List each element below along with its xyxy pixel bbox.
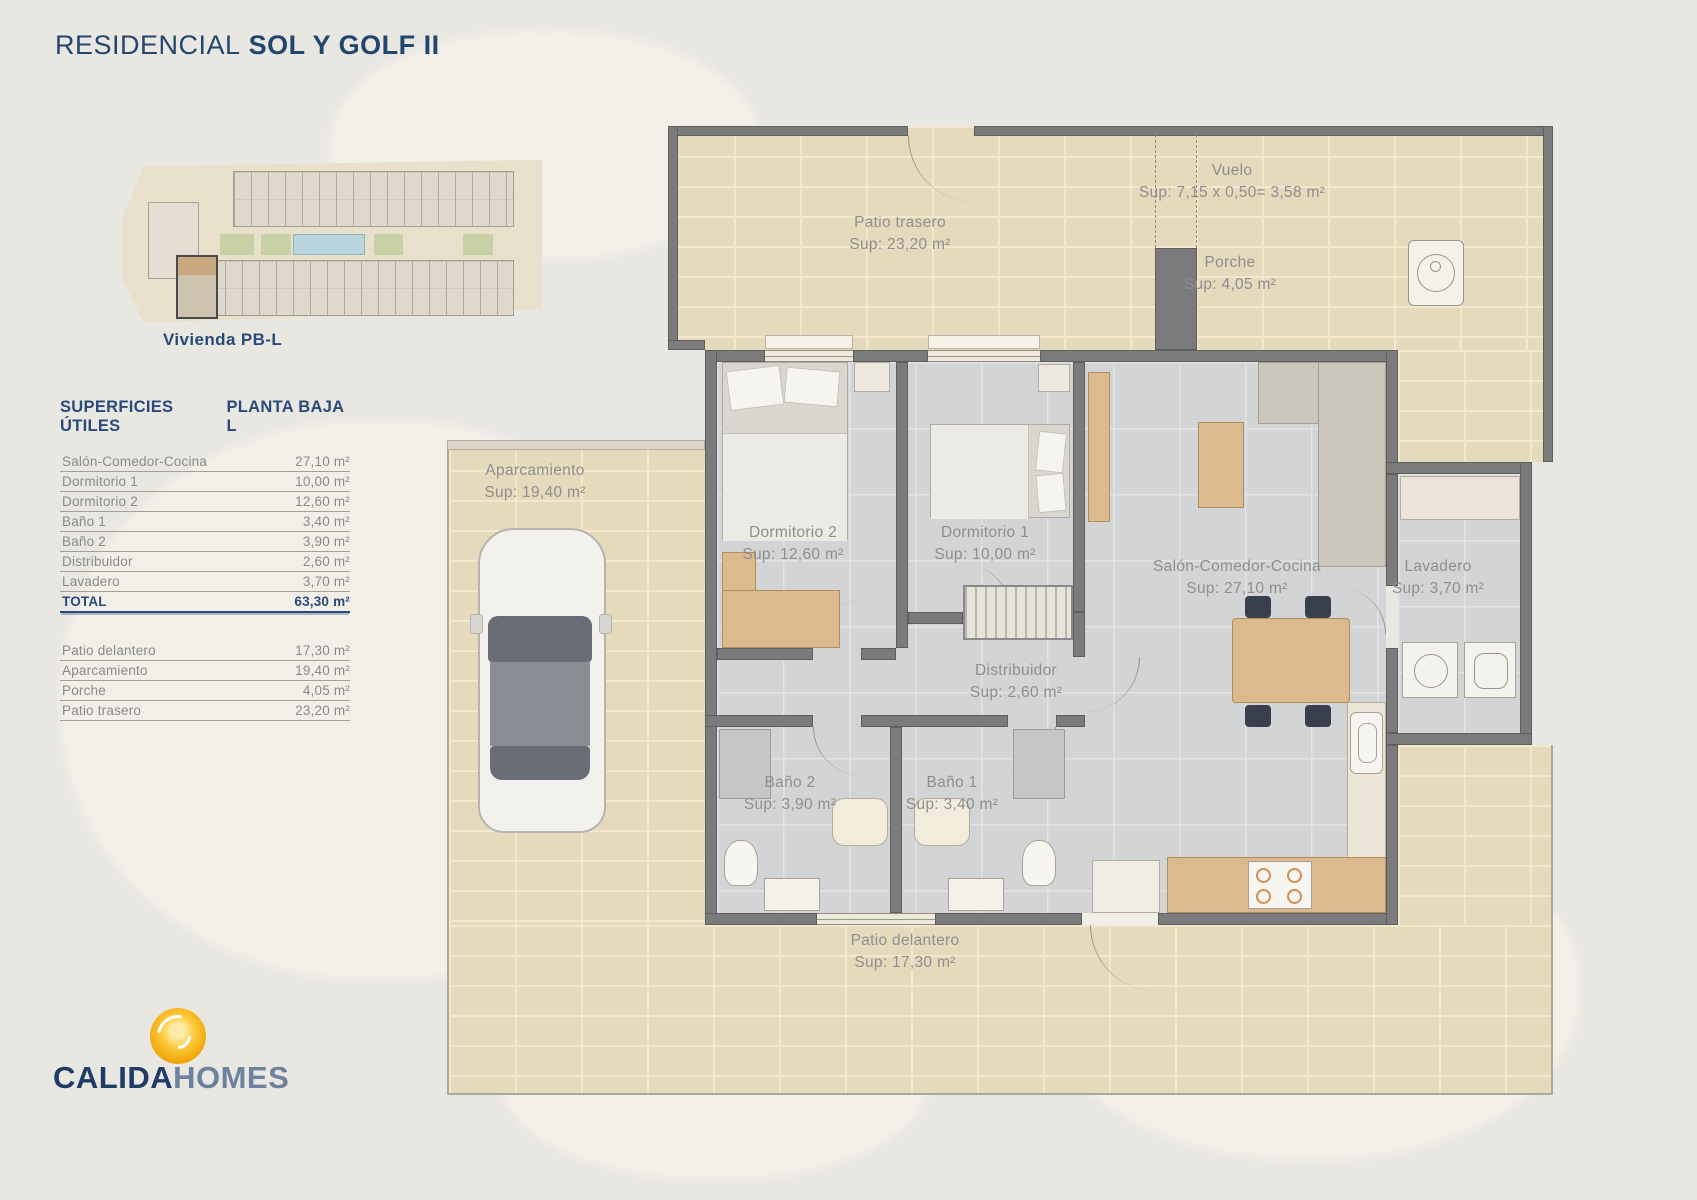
table-row: Baño 23,90 m² — [60, 532, 350, 552]
room-area: Sup: 3,90 m² — [744, 794, 836, 816]
room-name: Aparcamiento — [484, 460, 585, 482]
wall — [1386, 648, 1398, 733]
table-row: Patio trasero23,20 m² — [60, 701, 350, 721]
aparcamiento-fence — [447, 440, 705, 450]
wall — [1386, 350, 1398, 474]
window — [765, 350, 853, 362]
wall — [705, 350, 717, 925]
wall — [1543, 126, 1553, 462]
site-plan-pool — [293, 234, 365, 256]
page-title-bold: SOL Y GOLF II — [249, 30, 440, 60]
sink-basin — [1474, 653, 1508, 689]
table-row: Patio delantero17,30 m² — [60, 641, 350, 661]
patio-side-area — [1398, 745, 1553, 925]
room-area: Sup: 2,60 m² — [970, 682, 1062, 704]
areas-table-title: SUPERFICIES ÚTILES — [60, 398, 227, 436]
wall — [1073, 362, 1085, 612]
nightstand — [1038, 364, 1070, 392]
room-area: Sup: 12,60 m² — [742, 544, 843, 566]
dining-chair — [1245, 705, 1271, 727]
closet — [963, 585, 1073, 640]
row-label: Porche — [62, 683, 106, 698]
room-name: Lavadero — [1392, 556, 1484, 578]
room-name: Dormitorio 1 — [934, 522, 1035, 544]
porche-side-area — [1398, 350, 1543, 462]
washing-machine — [1402, 642, 1458, 698]
table-row: Baño 13,40 m² — [60, 512, 350, 532]
table-row: Aparcamiento19,40 m² — [60, 661, 350, 681]
window — [817, 913, 935, 925]
row-label: Dormitorio 2 — [62, 494, 138, 509]
row-value: 27,10 m² — [295, 454, 350, 469]
window-sill — [928, 335, 1040, 349]
washer-drum — [1414, 654, 1448, 688]
kitchen-sink — [1350, 712, 1383, 774]
label-patio-delantero: Patio delantero Sup: 17,30 m² — [851, 930, 960, 975]
pillow — [1035, 473, 1066, 513]
site-plan-garden — [374, 234, 404, 256]
car-mirror — [599, 614, 612, 634]
logo-brand-primary: CALIDA — [53, 1060, 173, 1095]
wall — [890, 727, 902, 913]
label-dormitorio-2: Dormitorio 2 Sup: 12,60 m² — [742, 522, 843, 567]
wall — [1056, 715, 1085, 727]
laundry-sink — [1464, 642, 1516, 698]
table-row: Dormitorio 212,60 m² — [60, 492, 350, 512]
wall — [705, 715, 813, 727]
car-windshield — [488, 616, 592, 662]
row-value: 17,30 m² — [295, 643, 350, 658]
burner — [1256, 889, 1271, 904]
table-row: Distribuidor2,60 m² — [60, 552, 350, 572]
label-aparcamiento: Aparcamiento Sup: 19,40 m² — [484, 460, 585, 505]
site-plan-caption: Vivienda PB-L — [163, 330, 282, 350]
row-label: Patio delantero — [62, 643, 156, 658]
table-row: Dormitorio 110,00 m² — [60, 472, 350, 492]
car-mirror — [470, 614, 483, 634]
window-sill — [765, 335, 853, 349]
wall — [974, 126, 1553, 136]
desk — [722, 590, 840, 648]
sofa-chaise — [1318, 362, 1386, 567]
site-plan-garden — [463, 234, 493, 256]
room-name: Patio trasero — [849, 212, 950, 234]
label-bano-1: Baño 1 Sup: 3,40 m² — [906, 772, 998, 817]
label-bano-2: Baño 2 Sup: 3,90 m² — [744, 772, 836, 817]
wall — [908, 612, 963, 624]
pillow — [726, 365, 784, 411]
sink-basin — [1358, 723, 1377, 763]
row-value: 3,40 m² — [303, 514, 350, 529]
row-value: 19,40 m² — [295, 663, 350, 678]
room-area: Sup: 3,40 m² — [906, 794, 998, 816]
table-row: Porche4,05 m² — [60, 681, 350, 701]
areas-table: SUPERFICIES ÚTILES PLANTA BAJA L Salón-C… — [60, 398, 350, 721]
dining-chair — [1305, 705, 1331, 727]
row-value: 3,90 m² — [303, 534, 350, 549]
room-name: Patio delantero — [851, 930, 960, 952]
row-label: Aparcamiento — [62, 663, 148, 678]
site-plan-garden — [261, 234, 291, 256]
burner — [1287, 868, 1302, 883]
wall — [935, 913, 1082, 925]
tv-cabinet — [1088, 372, 1110, 522]
row-label: Patio trasero — [62, 703, 141, 718]
areas-table-subtitle: PLANTA BAJA L — [227, 398, 351, 436]
car — [478, 528, 606, 833]
fridge — [1092, 860, 1160, 913]
room-name: Baño 2 — [744, 772, 836, 794]
laundry-counter — [1400, 476, 1520, 520]
label-dormitorio-1: Dormitorio 1 Sup: 10,00 m² — [934, 522, 1035, 567]
row-label: Salón-Comedor-Cocina — [62, 454, 207, 469]
shower — [1013, 729, 1065, 799]
dining-table — [1232, 618, 1350, 703]
pillow — [784, 367, 841, 408]
wall — [668, 126, 908, 136]
pillow — [1035, 431, 1067, 474]
label-patio-trasero: Patio trasero Sup: 23,20 m² — [849, 212, 950, 257]
wall — [1520, 462, 1532, 745]
label-lavadero: Lavadero Sup: 3,70 m² — [1392, 556, 1484, 601]
wall — [1040, 350, 1398, 362]
label-porche: Porche Sup: 4,05 m² — [1184, 252, 1276, 297]
room-area: Sup: 23,20 m² — [849, 234, 950, 256]
wall — [1158, 913, 1398, 925]
table-row-total: TOTAL63,30 m² — [60, 592, 350, 613]
wall — [861, 648, 896, 660]
logo-icon — [150, 1008, 206, 1064]
label-distribuidor: Distribuidor Sup: 2,60 m² — [970, 660, 1062, 705]
wall — [1386, 462, 1532, 474]
site-plan-highlighted-unit — [176, 255, 219, 319]
row-value: 63,30 m² — [294, 594, 350, 609]
wall — [853, 350, 928, 362]
porch-table — [1408, 240, 1464, 306]
room-name: Baño 1 — [906, 772, 998, 794]
row-value: 4,05 m² — [303, 683, 350, 698]
bed — [930, 424, 1070, 518]
bed — [722, 362, 848, 540]
wall — [1386, 733, 1532, 745]
row-value: 2,60 m² — [303, 554, 350, 569]
coffee-table — [1198, 422, 1244, 508]
burner — [1287, 889, 1302, 904]
toilet — [1022, 840, 1056, 886]
room-area: Sup: 27,10 m² — [1153, 578, 1321, 600]
bathroom-vanity — [948, 878, 1004, 911]
label-vuelo: Vuelo Sup: 7,15 x 0,50= 3,58 m² — [1139, 160, 1325, 205]
table-row: Lavadero3,70 m² — [60, 572, 350, 592]
logo-brand-secondary: HOMES — [173, 1060, 289, 1095]
room-name: Vuelo — [1139, 160, 1325, 182]
row-value: 10,00 m² — [295, 474, 350, 489]
bathtub — [832, 798, 888, 846]
wall — [1386, 745, 1398, 925]
room-area: Sup: 10,00 m² — [934, 544, 1035, 566]
room-name: Distribuidor — [970, 660, 1062, 682]
room-area: Sup: 7,15 x 0,50= 3,58 m² — [1139, 182, 1325, 204]
room-area: Sup: 3,70 m² — [1392, 578, 1484, 600]
wall — [1073, 612, 1085, 657]
room-name: Salón-Comedor-Cocina — [1153, 556, 1321, 578]
site-plan-building-north — [233, 171, 514, 226]
row-label: TOTAL — [62, 594, 107, 609]
wall — [717, 648, 813, 660]
nightstand — [854, 362, 890, 392]
row-value: 12,60 m² — [295, 494, 350, 509]
room-area: Sup: 19,40 m² — [484, 482, 585, 504]
wall — [668, 340, 705, 350]
site-plan-building-south — [207, 260, 514, 315]
site-plan-garden — [220, 234, 254, 256]
room-area: Sup: 17,30 m² — [851, 952, 960, 974]
porch-table-top — [1417, 254, 1455, 292]
wall — [668, 126, 678, 350]
patio-delantero-area — [447, 925, 1553, 1095]
logo-wordmark: CALIDAHOMES — [53, 1060, 289, 1096]
patio-trasero-area — [668, 126, 1553, 350]
site-plan-highlighted-unit-patio — [178, 257, 217, 275]
car-roof — [490, 662, 590, 746]
porch-table-detail — [1430, 261, 1441, 272]
page-title-light: RESIDENCIAL — [55, 30, 241, 60]
wall — [705, 913, 817, 925]
row-label: Baño 2 — [62, 534, 106, 549]
row-label: Baño 1 — [62, 514, 106, 529]
room-area: Sup: 4,05 m² — [1184, 274, 1276, 296]
label-salon-comedor-cocina: Salón-Comedor-Cocina Sup: 27,10 m² — [1153, 556, 1321, 601]
row-label: Lavadero — [62, 574, 120, 589]
row-value: 3,70 m² — [303, 574, 350, 589]
room-name: Porche — [1184, 252, 1276, 274]
stove — [1248, 861, 1312, 909]
row-label: Dormitorio 1 — [62, 474, 138, 489]
site-plan-thumbnail — [118, 158, 544, 326]
wall — [861, 715, 1008, 727]
toilet — [724, 840, 758, 886]
room-name: Dormitorio 2 — [742, 522, 843, 544]
table-row: Salón-Comedor-Cocina27,10 m² — [60, 452, 350, 472]
burner — [1256, 868, 1271, 883]
car-rear-window — [490, 746, 590, 780]
wall — [896, 362, 908, 648]
brochure-page: RESIDENCIAL SOL Y GOLF II Vivienda PB-L … — [0, 0, 1697, 1200]
window — [928, 350, 1040, 362]
row-value: 23,20 m² — [295, 703, 350, 718]
bed-sheet — [931, 425, 1029, 519]
row-label: Distribuidor — [62, 554, 133, 569]
bathroom-vanity — [764, 878, 820, 911]
page-title: RESIDENCIAL SOL Y GOLF II — [55, 30, 440, 61]
